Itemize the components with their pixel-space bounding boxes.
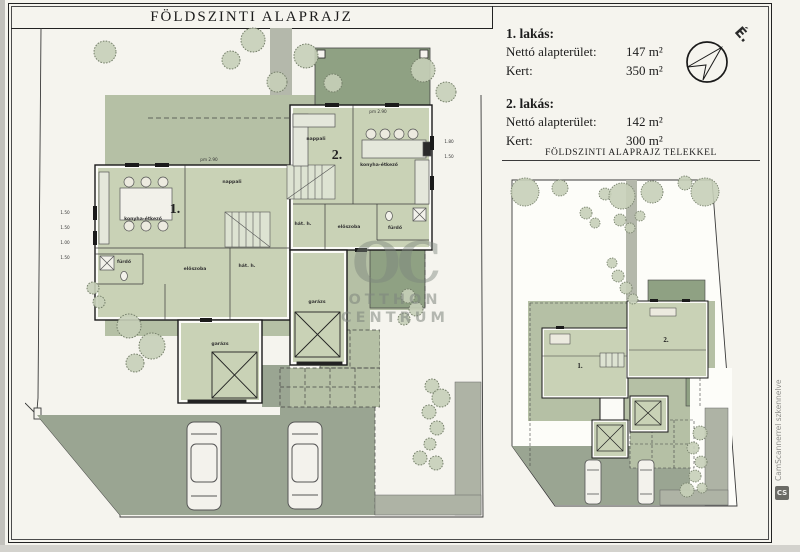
unit1-garage-label: garázs xyxy=(211,340,228,347)
dim-right-1: 1.80 xyxy=(444,139,454,144)
area-label: Nettó alapterület: xyxy=(506,113,626,132)
camscanner-logo: CS xyxy=(775,486,789,500)
mini-unit2-number: 2. xyxy=(663,336,669,344)
unit1-living-label: nappali xyxy=(222,179,242,185)
watermark-line1: OTTHON xyxy=(340,292,450,308)
unit1-number: 1. xyxy=(170,202,181,217)
dim-left-4: 1.50 xyxy=(60,255,70,260)
watermark-line2: CENTRUM xyxy=(340,310,450,326)
dim-left-3: 1.00 xyxy=(60,240,70,245)
unit2-kitchen-label: konyha-étkező xyxy=(360,161,398,168)
kitchen-bar-unit2 xyxy=(362,140,426,158)
unit2-utility-label: hát. h. xyxy=(295,220,312,227)
unit2-living-label: nappali xyxy=(306,136,326,142)
car-unit2 xyxy=(288,422,322,509)
dim-left-2: 1.50 xyxy=(60,225,70,230)
site-plan-heading: FÖLDSZINTI ALAPRAJZ TELEKKEL xyxy=(502,148,760,161)
unit1-bath-label: fürdő xyxy=(117,259,131,265)
camscanner-watermark-text: CamScannerrel szkennelve xyxy=(774,378,788,482)
unit2-number: 2. xyxy=(332,148,343,163)
dim-door-unit2: pm 2.90 xyxy=(369,109,387,114)
unit1-hall-label: előszoba xyxy=(184,266,207,272)
scan-edge-bottom xyxy=(0,545,800,552)
north-compass-icon: É. xyxy=(678,12,756,90)
dim-right-2: 1.50 xyxy=(444,154,454,159)
unit2-garage-label: garázs xyxy=(308,298,325,305)
dining-table-unit1 xyxy=(120,188,172,220)
apartment-2-name: 2. lakás: xyxy=(506,94,768,113)
kitchen-appliance-unit2 xyxy=(423,142,431,156)
kitchen-counter-unit1 xyxy=(99,172,109,244)
car-unit1 xyxy=(187,422,221,510)
scanned-floorplan-page: FÖLDSZINTI ALAPRAJZ 1. lakás: Nettó alap… xyxy=(0,0,800,552)
area-value: 142 m² xyxy=(626,113,696,132)
mini-site-plan: 1. 2. xyxy=(500,168,768,540)
stairs-unit2 xyxy=(287,165,335,199)
apartment-2-area-row: Nettó alapterület: 142 m² xyxy=(506,113,768,132)
dim-door-unit1: pm 2.90 xyxy=(200,157,218,162)
page-title: FÖLDSZINTI ALAPRAJZ xyxy=(150,9,353,26)
dim-left-1: 1.50 xyxy=(60,210,70,215)
unit1-utility-label: hát. h. xyxy=(239,262,256,269)
watermark-initials: OC xyxy=(352,230,437,296)
wc-unit2 xyxy=(386,211,393,220)
area-label: Nettó alapterület: xyxy=(506,43,626,62)
apartment-2-info: 2. lakás: Nettó alapterület: 142 m² Kert… xyxy=(506,94,768,150)
unit1-kitchen-label: konyha-étkező xyxy=(124,215,162,222)
mini-unit1-number: 1. xyxy=(577,362,583,370)
compass-north-label: É. xyxy=(731,23,754,45)
garden-label: Kert: xyxy=(506,62,626,81)
wc-unit1 xyxy=(121,271,128,280)
scan-edge-left xyxy=(0,0,5,552)
stairs-unit1 xyxy=(225,212,270,247)
